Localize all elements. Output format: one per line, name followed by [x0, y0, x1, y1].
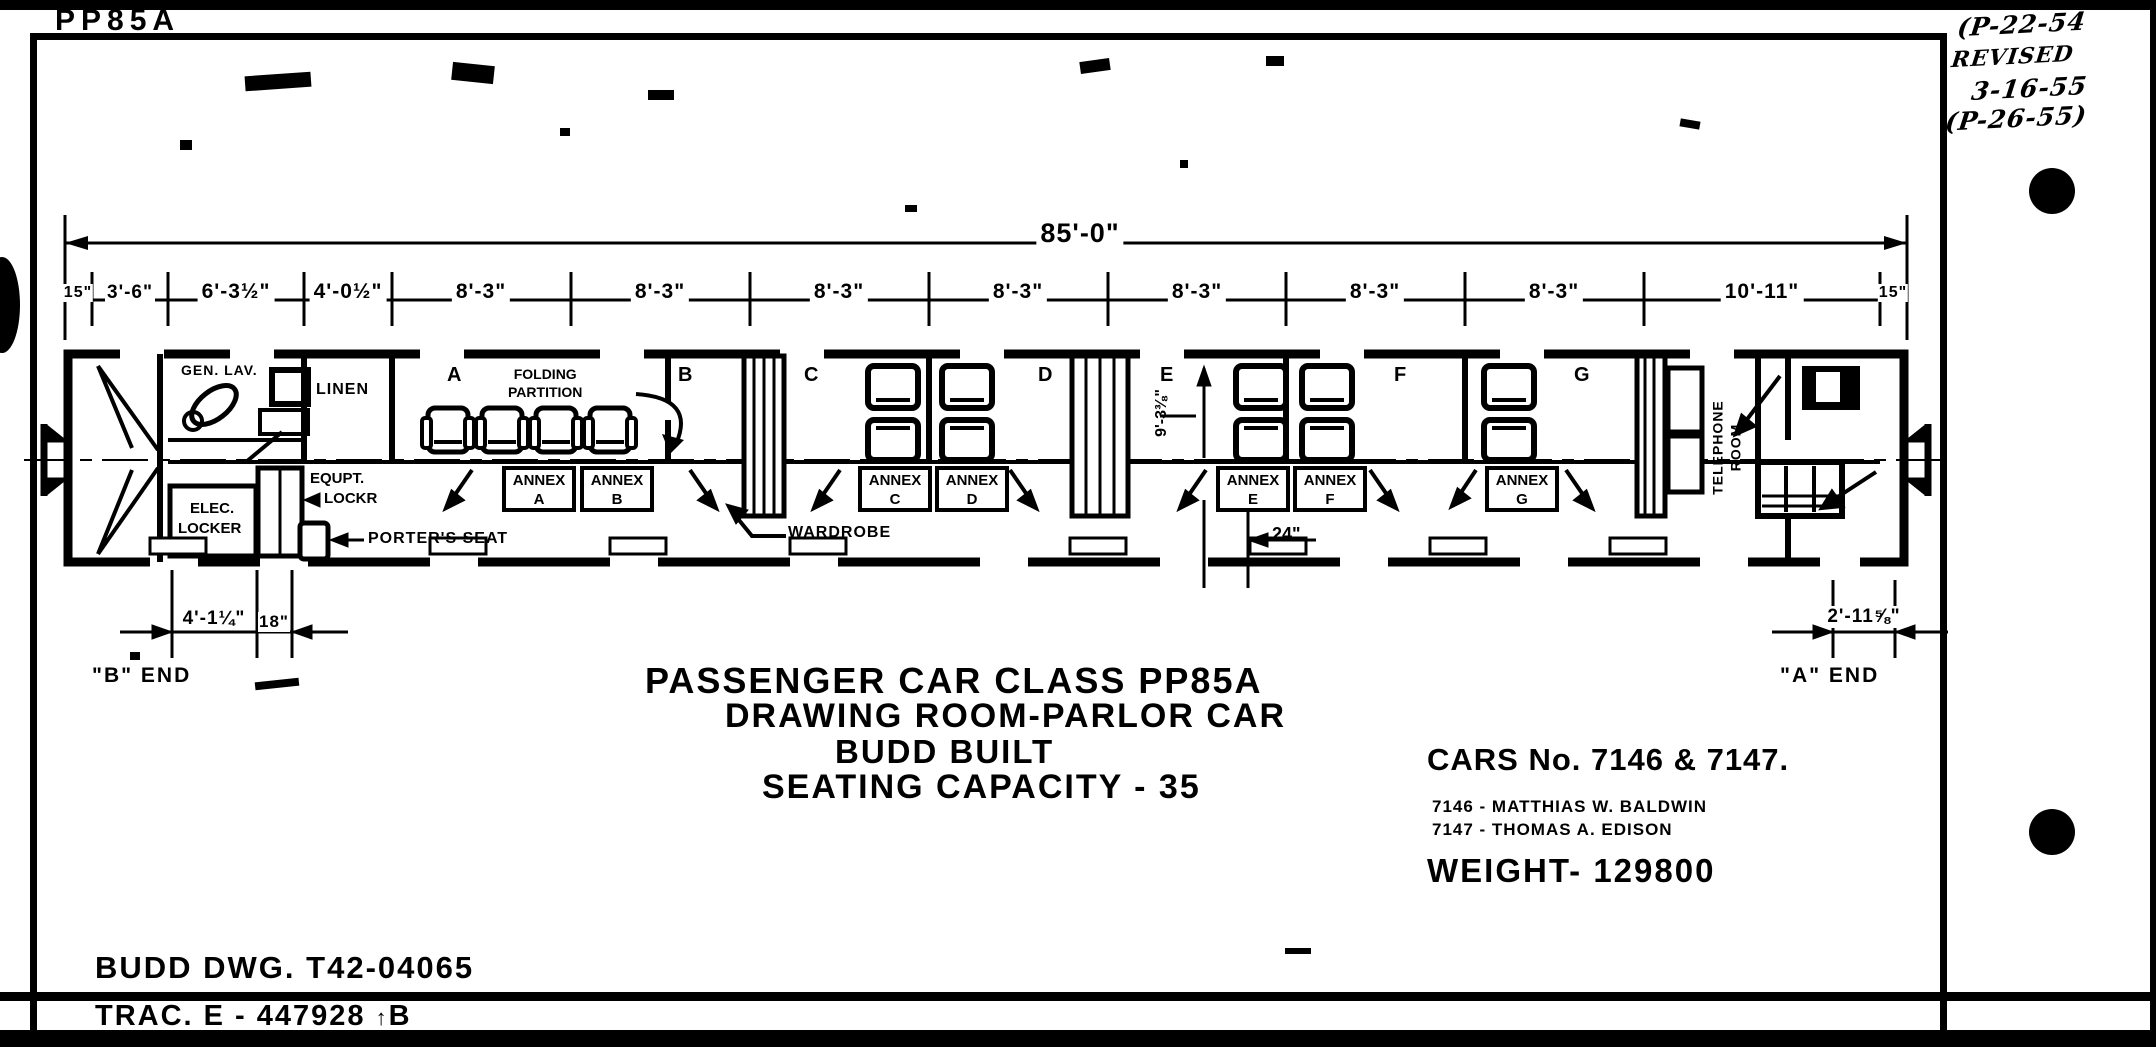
dimension-label: 8'-3" — [810, 280, 868, 304]
elec-locker-label: ELEC. — [190, 500, 234, 517]
tracing-number: TRAC. E - 447928 ↑B — [95, 1000, 412, 1033]
annex-box: ANNEXD — [935, 466, 1009, 512]
dimension-label: 8'-3" — [1168, 280, 1226, 304]
scan-edge-bottom — [0, 1030, 2156, 1047]
title-line-4: SEATING CAPACITY - 35 — [762, 768, 1201, 807]
aisle-dimension-label: 24" — [1272, 524, 1301, 545]
overall-dimension-line — [65, 215, 1907, 340]
dimension-label: 8'-3" — [989, 280, 1047, 304]
dimension-label: 8'-3" — [1525, 280, 1583, 304]
equpt-locker-label: LOCKR — [324, 490, 377, 507]
linen-label: LINEN — [316, 381, 369, 399]
scan-edge-blob — [0, 257, 20, 353]
scan-noise — [1180, 160, 1188, 168]
room-letter: G — [1574, 364, 1590, 387]
car-name: 7147 - THOMAS A. EDISON — [1432, 820, 1673, 840]
scan-noise — [130, 652, 140, 660]
dimension-label: 3'-6" — [105, 282, 155, 304]
porters-seat-label: PORTER'S SEAT — [368, 530, 508, 548]
room-letter: F — [1394, 364, 1406, 387]
a-end-dimension-label: 2'-11⅝" — [1823, 606, 1904, 628]
elec-locker-label: LOCKER — [178, 520, 241, 537]
dimension-label: 8'-3" — [452, 280, 510, 304]
annex-box: ANNEXG — [1485, 466, 1559, 512]
cars-number: CARS No. 7146 & 7147. — [1427, 742, 1789, 778]
telephone-room-closets — [1668, 368, 1702, 492]
room-depth-label: 9'-3⅜" — [1153, 389, 1171, 437]
weight-label: WEIGHT- 129800 — [1427, 852, 1715, 890]
punch-hole-bottom — [2029, 809, 2075, 855]
room-letter: B — [678, 364, 692, 387]
b-end-label: "B" END — [92, 664, 191, 688]
handwritten-caret-mark: ↑ — [376, 1005, 389, 1030]
title-line-3: BUDD BUILT — [835, 733, 1054, 771]
gen-lav-label: GEN. LAV. — [181, 362, 258, 378]
b-end-dimension-label: 18" — [258, 612, 290, 632]
porters-seat-box — [300, 523, 328, 559]
title-line-1: PASSENGER CAR CLASS PP85A — [645, 660, 1262, 702]
wardrobe-label: WARDROBE — [788, 524, 891, 542]
scan-noise — [180, 140, 192, 150]
scan-noise — [648, 90, 674, 100]
equpt-locker-label: EQUPT. — [310, 470, 364, 487]
room-letter: E — [1160, 364, 1173, 387]
dimension-label: 15" — [1878, 284, 1908, 302]
a-end-label: "A" END — [1780, 664, 1879, 688]
dimension-label: 10'-11" — [1721, 280, 1804, 304]
annex-box: ANNEXC — [858, 466, 932, 512]
scan-noise — [1285, 948, 1311, 954]
car-name: 7146 - MATTHIAS W. BALDWIN — [1432, 797, 1707, 817]
annex-box: ANNEXA — [502, 466, 576, 512]
title-line-2: DRAWING ROOM-PARLOR CAR — [725, 697, 1286, 736]
annex-box: ANNEXE — [1216, 466, 1290, 512]
annex-box: ANNEXB — [580, 466, 654, 512]
tracing-number-suffix: B — [389, 1000, 412, 1032]
dimension-label: 8'-3" — [1346, 280, 1404, 304]
scan-edge-top — [0, 0, 2156, 10]
b-end-dimension-label: 4'-1¼" — [179, 608, 250, 630]
dimension-label: 4'-0½" — [310, 280, 387, 304]
dimension-label: 15" — [63, 284, 93, 302]
telephone-room-label: TELEPHONEROOM — [1710, 378, 1745, 518]
car-plan-drawing — [0, 0, 2156, 1047]
annex-box: ANNEXF — [1293, 466, 1367, 512]
dimension-label: 6'-3½" — [198, 280, 275, 304]
room-letter: D — [1038, 364, 1052, 387]
overall-dimension-label: 85'-0" — [1036, 218, 1123, 249]
room-letter: C — [804, 364, 818, 387]
scanned-drawing-sheet: PP85A (P-22-54 REVISED 3-16-55 (P-26-55)… — [0, 0, 2156, 1047]
scan-noise — [905, 205, 917, 212]
scan-edge-right — [2150, 0, 2156, 1047]
tracing-number-text: TRAC. E - 447928 — [95, 1000, 366, 1032]
dimension-label: 8'-3" — [631, 280, 689, 304]
folding-partition-label: FOLDINGPARTITION — [508, 366, 582, 401]
scan-noise — [1266, 56, 1284, 66]
scan-noise — [560, 128, 570, 136]
budd-drawing-number: BUDD DWG. T42-04065 — [95, 950, 474, 986]
punch-hole-top — [2029, 168, 2075, 214]
room-letter: A — [447, 364, 461, 387]
